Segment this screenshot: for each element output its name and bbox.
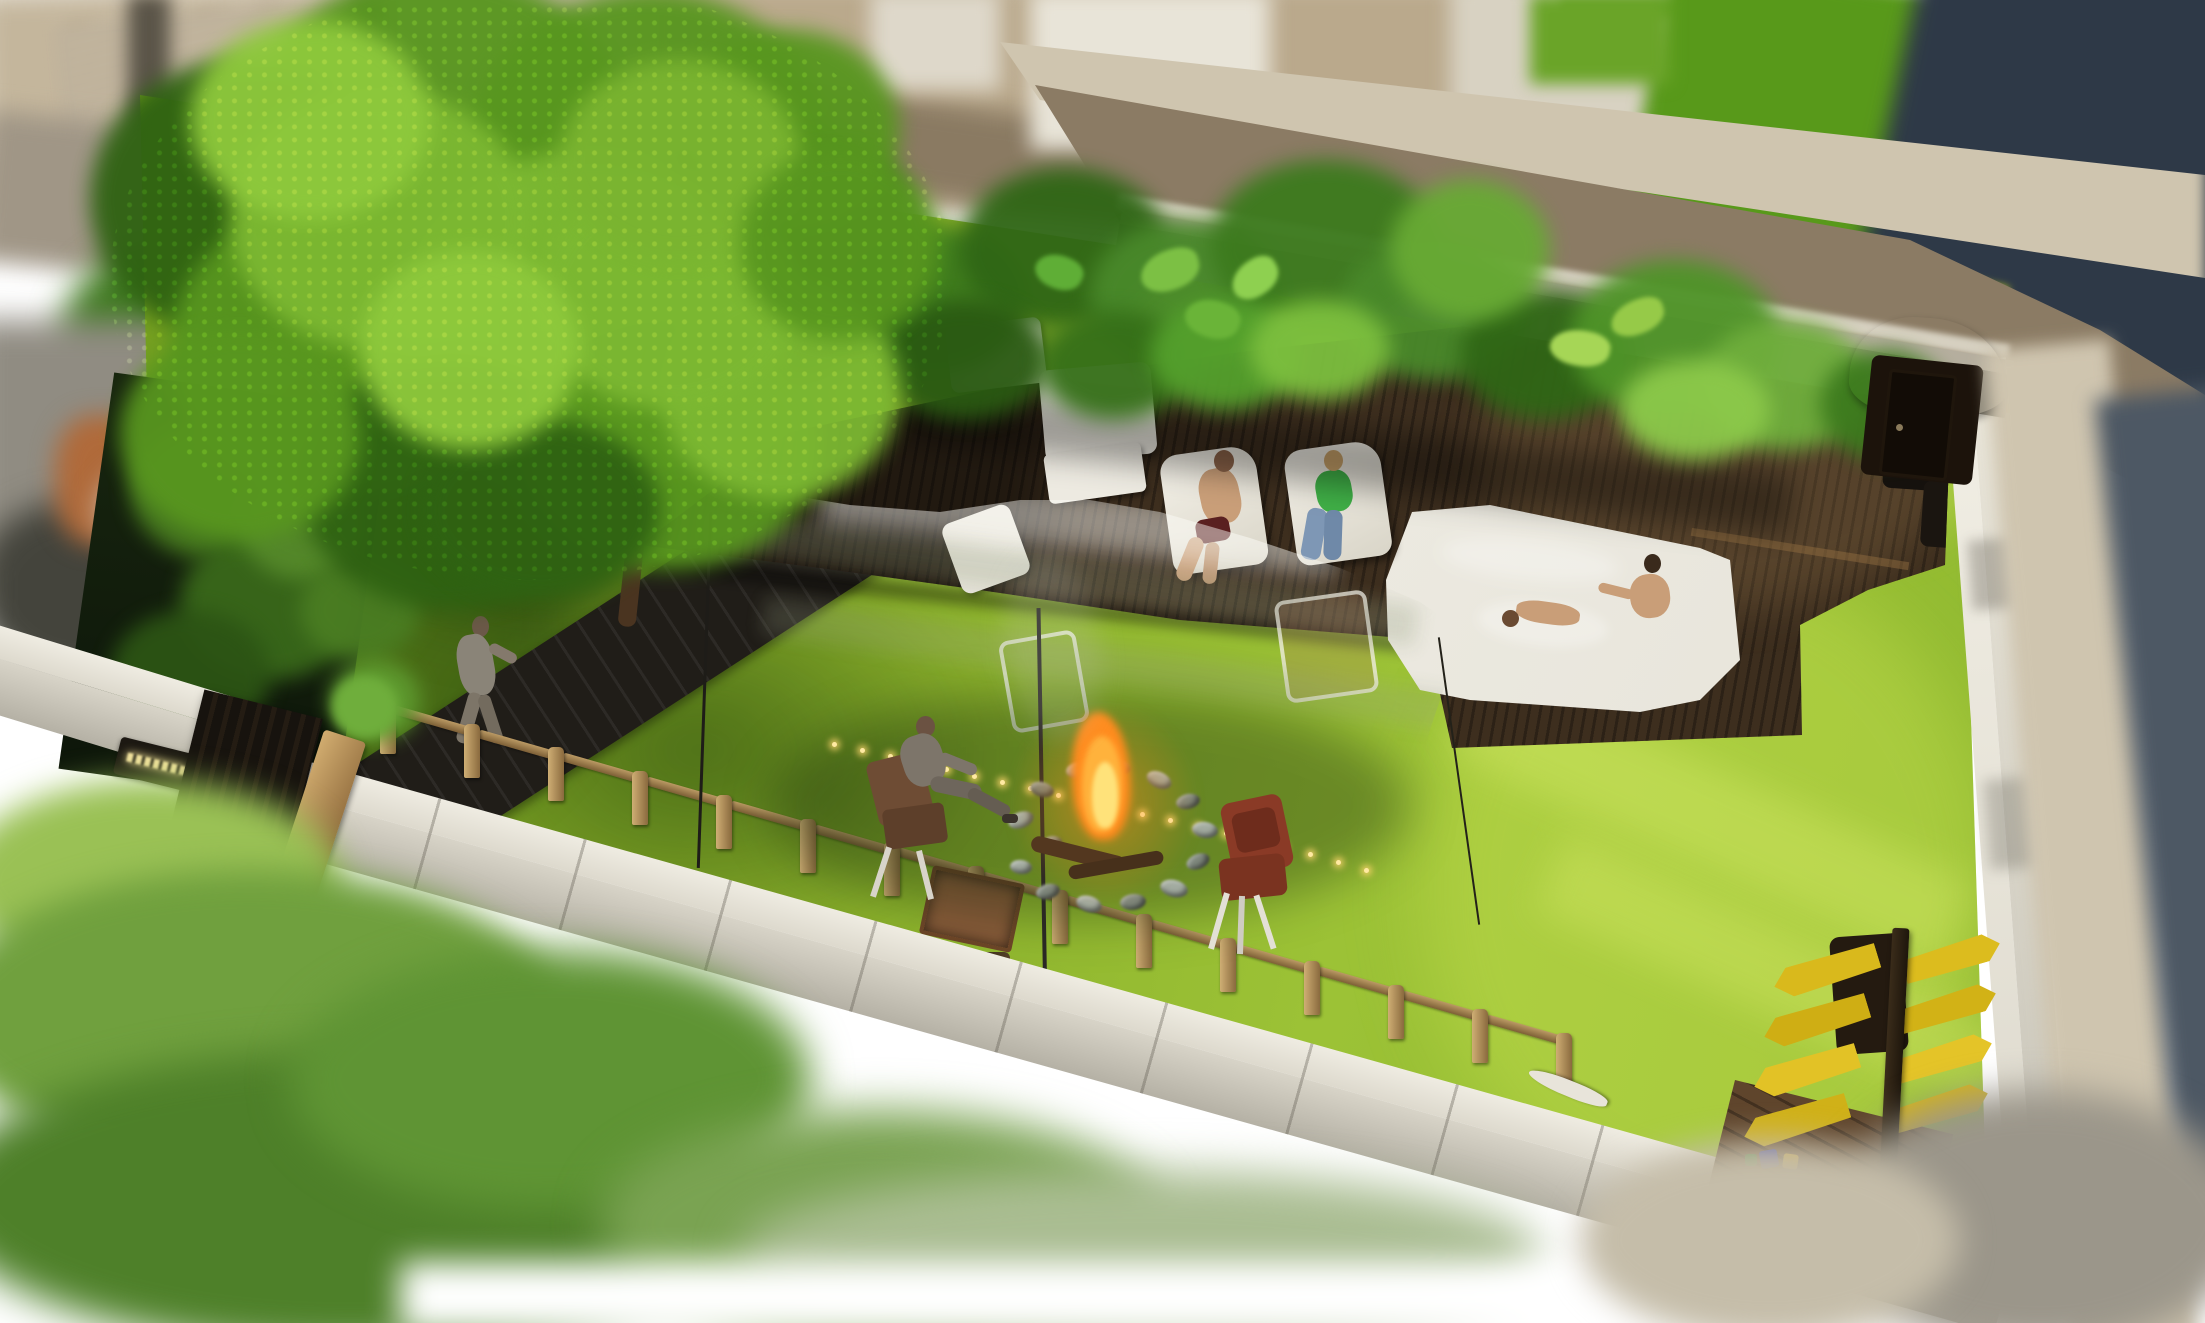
- camp-chair-left-seat: [882, 802, 949, 850]
- lawn-strip: [1530, 0, 1670, 84]
- walker-torso: [453, 631, 499, 698]
- seated-person-foot: [1002, 814, 1018, 823]
- bottom-white-fade: [400, 1262, 1620, 1323]
- swimmer-standing-head: [1644, 554, 1661, 573]
- backyard-aerial-render: [0, 0, 2205, 1323]
- walker-leg: [477, 693, 505, 745]
- outdoor-bar: [944, 316, 1047, 393]
- woman-jeans: [1323, 510, 1343, 561]
- swimmer-lying-head: [1502, 610, 1519, 627]
- hut-door-handle: [1896, 424, 1903, 431]
- bright-bush: [332, 676, 398, 738]
- building-white-wing: [870, 0, 1000, 90]
- nameplate-glow-text: [126, 752, 186, 775]
- garden-hut-door: [1879, 369, 1958, 482]
- walking-person: [440, 600, 560, 770]
- tree-speckle: [110, 0, 950, 580]
- flame-core: [1092, 762, 1118, 828]
